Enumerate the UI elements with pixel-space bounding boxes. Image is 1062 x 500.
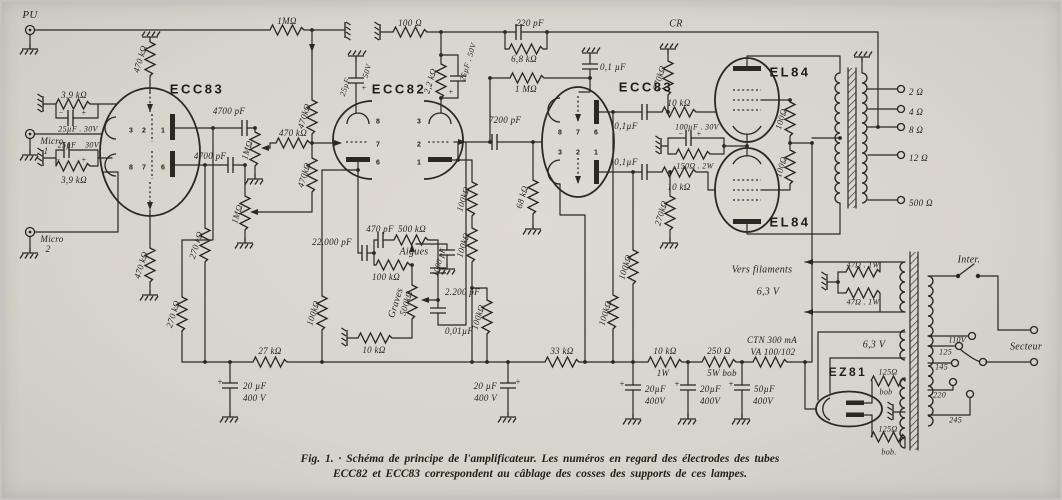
schematic-figure: PUMicro1Micro21MΩ100 Ω220 pF6,8 kΩCR0,1 … — [0, 0, 1062, 500]
switch-contact-icon — [976, 274, 980, 278]
micro1-jack-icon — [26, 130, 35, 139]
switch-contact-icon — [956, 274, 960, 278]
grid-heater-lines — [150, 90, 761, 212]
output-taps — [898, 86, 905, 204]
wiring — [30, 30, 1030, 448]
caption-line-1: Fig. 1. · Schéma de principe de l'amplif… — [170, 452, 910, 467]
capacitors — [64, 24, 750, 390]
pu-jack-icon — [26, 26, 35, 35]
caption-line-2: ECC82 et ECC83 correspondent au câblage … — [170, 467, 910, 482]
tube-ecc82 — [333, 101, 463, 179]
figure-caption: Fig. 1. · Schéma de principe de l'amplif… — [170, 452, 910, 482]
input-jacks — [26, 26, 35, 237]
schematic-canvas — [0, 0, 1062, 500]
tube-ez81 — [816, 392, 882, 427]
micro2-jack-icon — [26, 228, 35, 237]
arrows — [147, 44, 813, 315]
power-transformer — [900, 252, 1038, 450]
